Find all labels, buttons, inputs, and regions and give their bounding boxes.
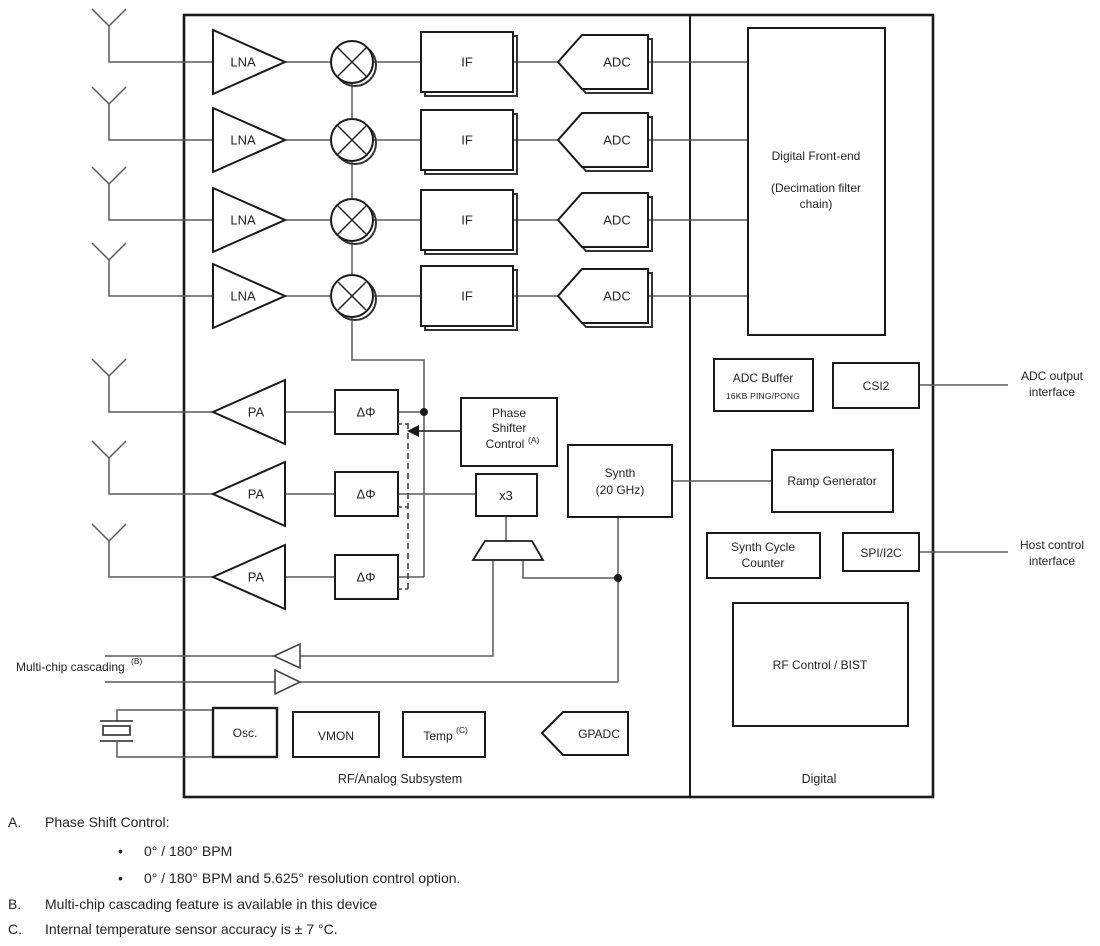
vmon-label: VMON: [318, 729, 354, 743]
csi2-block: CSI2: [833, 363, 919, 408]
footnote-a-bullet1: 0° / 180° BPM: [144, 843, 232, 859]
footnotes: A. Phase Shift Control: • 0° / 180° BPM …: [8, 814, 460, 937]
gpadc-label: GPADC: [578, 727, 620, 741]
digital-front-end-block: Digital Front-end (Decimation filter cha…: [748, 28, 885, 335]
ramp-generator-block: Ramp Generator: [772, 450, 893, 512]
wire: [523, 560, 618, 578]
pa-blocks: PA PA PA: [213, 380, 285, 609]
dfe-label-line1: Digital Front-end: [772, 149, 861, 163]
gpadc-block: GPADC: [542, 712, 628, 755]
adc-label: ADC: [603, 213, 630, 228]
synth-block: Synth (20 GHz): [568, 445, 672, 517]
wire: [117, 741, 213, 757]
cascade-in-buffer-icon: [275, 670, 300, 694]
bullet-icon: •: [118, 843, 123, 859]
adc-buffer-block: ADC Buffer 16KB PING/PONG: [714, 359, 813, 411]
dfe-label-line2: (Decimation filter: [771, 181, 861, 195]
if-label: IF: [461, 133, 473, 148]
cascade-out-buffer-icon: [274, 644, 300, 668]
delta-phi-label: ΔΦ: [356, 570, 375, 585]
antenna-icon: [92, 87, 126, 104]
spi-i2c-block: SPI/I2C: [843, 533, 919, 571]
crystal-icon: [103, 726, 130, 735]
temp-label: Temp: [423, 729, 453, 743]
pa-label: PA: [248, 487, 265, 502]
svg-text:interface: interface: [1029, 385, 1075, 399]
adc-output-interface-label: ADC output interface: [1021, 369, 1084, 399]
host-control-interface-label: Host control interface: [1020, 538, 1084, 568]
footnote-b-text: Multi-chip cascading feature is availabl…: [45, 896, 377, 912]
block-diagram-page: LNA LNA LNA LNA IF IF IF: [0, 0, 1100, 946]
antenna-icon: [92, 441, 126, 458]
multi-chip-cascading-label: Multi-chip cascading (B): [16, 656, 143, 674]
junction-dot: [614, 574, 622, 582]
rf-control-bist-label: RF Control / BIST: [773, 658, 868, 672]
bullet-icon: •: [118, 870, 123, 886]
cascade-out-wire: [105, 560, 493, 656]
antenna-icon: [92, 167, 126, 184]
lna-label: LNA: [230, 213, 256, 228]
svg-text:ADC output: ADC output: [1021, 369, 1084, 383]
synth-cycle-counter-block: Synth Cycle Counter: [707, 533, 820, 578]
if-label: IF: [461, 55, 473, 70]
osc-label: Osc.: [233, 726, 258, 740]
adc-label: ADC: [603, 133, 630, 148]
footnote-a-bullet2: 0° / 180° BPM and 5.625° resolution cont…: [144, 870, 460, 886]
antenna-icon: [92, 524, 126, 541]
phase-shifter-blocks: ΔΦ ΔΦ ΔΦ: [335, 390, 398, 599]
if-label: IF: [461, 213, 473, 228]
phase-shifter-control-block: Phase Shifter Control (A): [461, 398, 557, 466]
antenna-icon: [92, 9, 126, 26]
rx-antennas: [92, 9, 213, 296]
mixer-blocks: [331, 41, 376, 320]
svg-text:Host control: Host control: [1020, 538, 1084, 552]
footnote-a-text: Phase Shift Control:: [45, 814, 170, 830]
footnote-b-marker: B.: [8, 896, 21, 912]
csi2-label: CSI2: [863, 379, 890, 393]
if-blocks: IF IF IF IF: [421, 32, 517, 330]
rf-control-bist-block: RF Control / BIST: [733, 603, 908, 726]
lna-blocks: LNA LNA LNA LNA: [213, 30, 285, 328]
crystal-circuit: [100, 710, 213, 757]
wire: [109, 184, 213, 220]
junction-dot: [420, 408, 428, 416]
temp-sensor-block: Temp (C): [403, 712, 485, 757]
rf-analog-subsystem-label: RF/Analog Subsystem: [338, 772, 462, 786]
wire: [117, 710, 213, 721]
adc-buffer-subtitle: 16KB PING/PONG: [726, 391, 800, 401]
psc-footnote-ref: (A): [528, 435, 540, 445]
synth-line2: (20 GHz): [596, 483, 645, 497]
lna-label: LNA: [230, 289, 256, 304]
svg-text:interface: interface: [1029, 554, 1075, 568]
multi-chip-footnote-ref: (B): [131, 656, 143, 666]
adc-label: ADC: [603, 289, 630, 304]
x3-multiplier-block: x3: [476, 474, 537, 516]
digital-region-label: Digital: [802, 772, 837, 786]
wire: [109, 104, 213, 140]
antenna-icon: [92, 243, 126, 260]
pa-label: PA: [248, 405, 265, 420]
lna-label: LNA: [230, 55, 256, 70]
vmon-block: VMON: [293, 712, 379, 757]
psc-line2: Shifter: [492, 421, 527, 435]
wire: [109, 376, 213, 412]
scc-line2: Counter: [742, 556, 785, 570]
psc-line1: Phase: [492, 406, 526, 420]
psc-line3: Control: [486, 437, 525, 451]
delta-phi-label: ΔΦ: [356, 487, 375, 502]
multi-chip-text: Multi-chip cascading: [16, 660, 125, 674]
wire: [109, 260, 213, 296]
synth-line1: Synth: [605, 466, 636, 480]
phase-control-bus: [398, 423, 461, 592]
pa-label: PA: [248, 570, 265, 585]
osc-block: Osc.: [213, 708, 277, 757]
adc-blocks: ADC ADC ADC ADC: [558, 35, 652, 327]
antenna-icon: [92, 359, 126, 376]
delta-phi-label: ΔΦ: [356, 405, 375, 420]
footnote-a-marker: A.: [8, 814, 21, 830]
tx-antennas: [92, 359, 213, 577]
adc-buffer-title: ADC Buffer: [733, 371, 793, 385]
scc-line1: Synth Cycle: [731, 540, 795, 554]
wire: [109, 458, 213, 494]
wire: [109, 541, 213, 577]
spi-i2c-label: SPI/I2C: [860, 546, 902, 560]
block-diagram-svg: LNA LNA LNA LNA IF IF IF: [0, 0, 1100, 946]
temp-footnote-ref: (C): [456, 725, 468, 735]
dfe-label-line3: chain): [800, 197, 833, 211]
wire: [109, 26, 213, 62]
adc-label: ADC: [603, 55, 630, 70]
if-label: IF: [461, 289, 473, 304]
lo-bus: [352, 317, 424, 577]
footnote-c-marker: C.: [8, 921, 22, 937]
x3-label: x3: [499, 488, 513, 503]
ramp-generator-label: Ramp Generator: [787, 474, 876, 488]
footnote-c-text: Internal temperature sensor accuracy is …: [45, 921, 338, 937]
lna-label: LNA: [230, 133, 256, 148]
lo-mux-icon: [473, 541, 543, 560]
